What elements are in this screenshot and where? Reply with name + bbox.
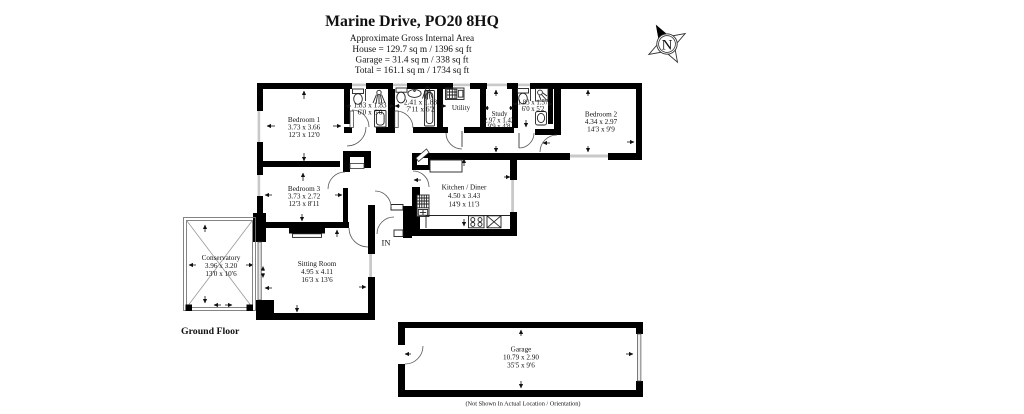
svg-text:House = 129.7 sq m / 1396 sq f: House = 129.7 sq m / 1396 sq ft — [352, 44, 472, 55]
svg-text:3.96 x 3.20: 3.96 x 3.20 — [205, 262, 238, 270]
svg-text:9'9 x 4'8: 9'9 x 4'8 — [488, 124, 511, 131]
svg-text:7'11 x 6'2: 7'11 x 6'2 — [406, 105, 435, 114]
svg-text:Total = 161.1 sq m / 1734 sq f: Total = 161.1 sq m / 1734 sq ft — [355, 65, 470, 76]
svg-text:14'9 x 11'3: 14'9 x 11'3 — [448, 201, 479, 209]
svg-text:Marine Drive, PO20 8HQ: Marine Drive, PO20 8HQ — [325, 13, 499, 30]
svg-text:N: N — [662, 37, 673, 53]
svg-text:10.79 x 2.90: 10.79 x 2.90 — [503, 354, 539, 362]
svg-text:16'3 x 13'6: 16'3 x 13'6 — [301, 276, 333, 284]
svg-text:Utility: Utility — [452, 104, 471, 112]
svg-text:12'3 x 8'11: 12'3 x 8'11 — [288, 200, 319, 208]
svg-text:35'5 x 9'6: 35'5 x 9'6 — [507, 362, 535, 370]
svg-text:4.95 x 4.11: 4.95 x 4.11 — [301, 268, 333, 276]
svg-text:4.50 x 3.43: 4.50 x 3.43 — [448, 192, 481, 200]
svg-text:Conservatory: Conservatory — [202, 254, 241, 262]
svg-text:14'3 x 9'9: 14'3 x 9'9 — [587, 126, 615, 134]
svg-text:Sitting Room: Sitting Room — [298, 260, 337, 268]
svg-text:Approximate Gross Internal Are: Approximate Gross Internal Area — [350, 34, 474, 44]
svg-text:Garage = 31.4 sq m / 338 sq ft: Garage = 31.4 sq m / 338 sq ft — [356, 55, 469, 66]
svg-text:13'0 x 10'6: 13'0 x 10'6 — [205, 270, 237, 278]
svg-text:12'3 x 12'0: 12'3 x 12'0 — [288, 131, 320, 139]
svg-text:6'0 x 6'0: 6'0 x 6'0 — [358, 108, 383, 117]
svg-text:IN: IN — [382, 238, 391, 248]
svg-text:Ground Floor: Ground Floor — [181, 326, 240, 337]
svg-text:Garage: Garage — [511, 346, 532, 354]
svg-text:6'0 x 5'2: 6'0 x 5'2 — [522, 106, 545, 113]
svg-text:Kitchen / Diner: Kitchen / Diner — [442, 184, 487, 192]
svg-text:(Not Shown In Actual Location: (Not Shown In Actual Location / Orientat… — [465, 401, 580, 408]
